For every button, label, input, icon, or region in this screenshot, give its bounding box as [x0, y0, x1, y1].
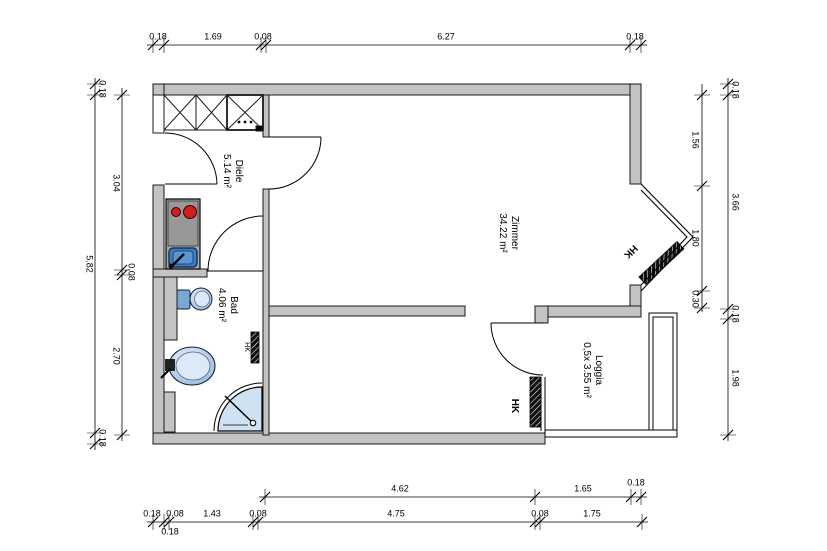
dim-bottom-lower-0: 0.18 [143, 510, 161, 519]
dim-top-2: 0.08 [254, 33, 272, 42]
dim-left-outer-1: 5.82 [85, 255, 94, 273]
dim-right-outer-1: 3.66 [731, 193, 740, 211]
dim-bottom-lower-3: 0.08 [249, 510, 267, 519]
room-label-loggia: Loggia 0,5x 3.55 m² [580, 342, 604, 398]
room-name: Bad [227, 288, 239, 322]
dim-bottom-upper-2: 0.18 [627, 479, 645, 488]
dim-bottom-lower-2: 1.43 [203, 510, 221, 519]
radiator-label-bad: HK [241, 342, 251, 352]
radiator-label-loggia: HK [509, 399, 519, 413]
dim-right-inner-2: 0.30 [691, 290, 700, 308]
room-label-bad: Bad 4.06 m² [215, 288, 239, 322]
dim-right-inner-0: 1.56 [691, 131, 700, 149]
entry-door [165, 133, 217, 184]
diele-zimmer-door [269, 137, 321, 189]
toilet [177, 288, 212, 310]
dim-bottom-lower-1: 0.08 [166, 510, 184, 519]
dim-bottom-lower-4: 4.75 [387, 510, 405, 519]
room-label-diele: Diele 5.14 m² [220, 154, 244, 188]
dim-left-inner-1: 0.08 [127, 263, 136, 281]
dim-bottom-below: 0.18 [161, 528, 179, 537]
loggia-glass-wall [541, 377, 545, 431]
dim-top-4: 0.18 [626, 33, 644, 42]
dim-right-outer-2: 0.18 [731, 305, 740, 323]
loggia-railing [545, 313, 677, 437]
stove-burner-large [184, 206, 197, 219]
room-area: 4.06 m² [215, 288, 227, 322]
room-label-zimmer: Zimmer 34.22 m² [496, 213, 520, 252]
room-name: Zimmer [508, 213, 520, 252]
wardrobe-closet [164, 95, 263, 131]
floorplan-drawing [0, 0, 827, 551]
room-name: Diele [232, 154, 244, 188]
dim-right-outer-3: 1.98 [731, 369, 740, 387]
radiator-loggia-door [530, 377, 541, 427]
room-area: 0,5x 3.55 m² [580, 342, 592, 398]
room-area: 5.14 m² [220, 154, 232, 188]
dim-right-outer-0: 0.18 [731, 81, 740, 99]
bad-door [207, 216, 263, 271]
dim-left-outer-2: 0.18 [98, 429, 107, 447]
dim-bottom-lower-5: 0.08 [531, 510, 549, 519]
dim-left-outer-0: 0.18 [98, 80, 107, 98]
walls [153, 84, 641, 444]
kitchenette [166, 199, 200, 269]
room-name: Loggia [592, 342, 604, 398]
dim-right-inner-1: 1.80 [691, 229, 700, 247]
washbasin [161, 347, 215, 385]
dim-left-inner-0: 3.04 [112, 174, 121, 192]
stove-burner-small [172, 208, 181, 217]
room-area: 34.22 m² [496, 213, 508, 252]
dim-top-0: 0.18 [149, 33, 167, 42]
dim-bottom-upper-1: 1.65 [574, 485, 592, 494]
dim-bottom-lower-6: 1.75 [583, 510, 601, 519]
wall-segment-white [153, 95, 164, 133]
shower-drain [250, 420, 256, 426]
shower [214, 383, 262, 431]
dim-bottom-upper-0: 4.62 [391, 485, 409, 494]
radiator-bad [251, 332, 259, 363]
dim-top-1: 1.69 [204, 33, 222, 42]
balcony-door [491, 323, 543, 375]
dim-top-3: 6.27 [437, 33, 455, 42]
floorplan-page: Diele 5.14 m² Zimmer 34.22 m² Bad 4.06 m… [0, 0, 827, 551]
dim-left-inner-2: 2.70 [112, 347, 121, 365]
